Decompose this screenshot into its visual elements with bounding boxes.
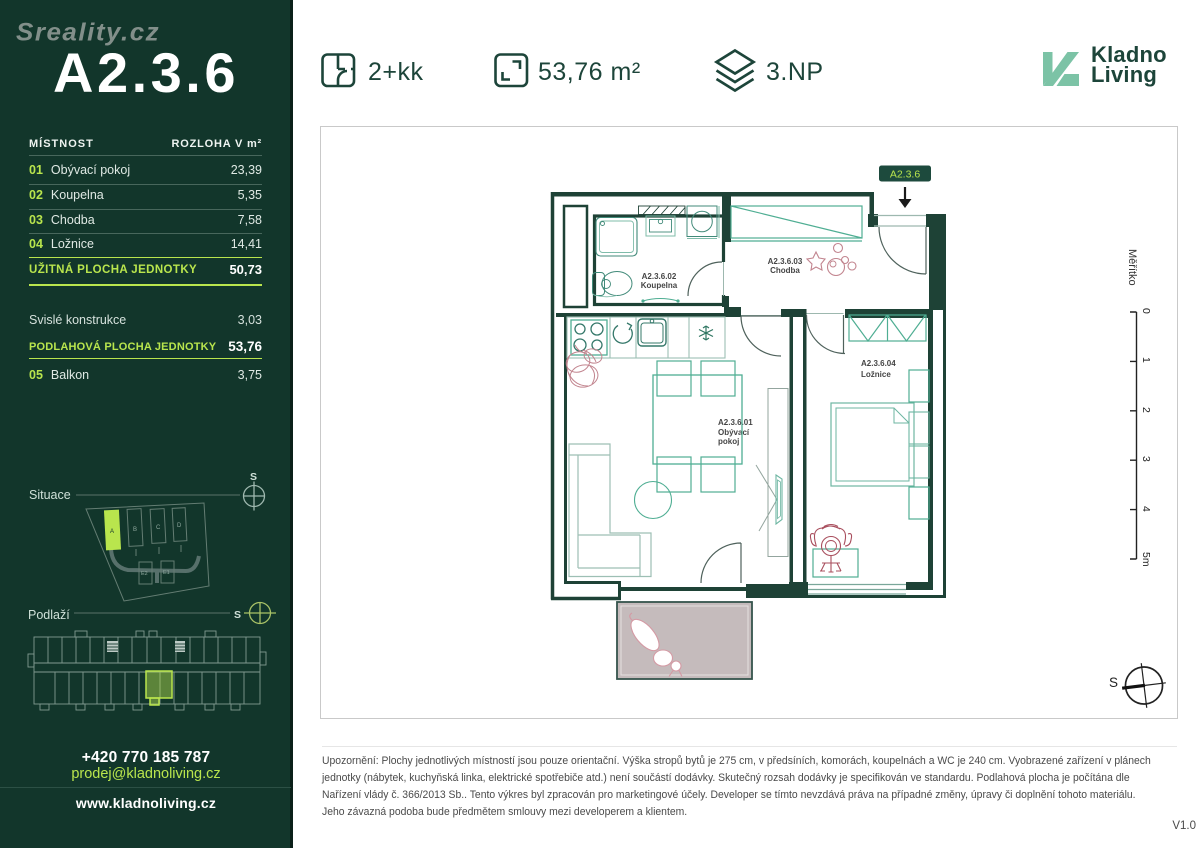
svg-text:D: D bbox=[177, 523, 182, 529]
svg-text:A2.3.6: A2.3.6 bbox=[890, 169, 921, 181]
svg-text:A: A bbox=[110, 529, 114, 535]
svg-text:E1: E1 bbox=[163, 570, 170, 576]
svg-text:S: S bbox=[250, 471, 257, 483]
svg-text:S: S bbox=[234, 609, 241, 621]
svg-text:B: B bbox=[133, 527, 137, 533]
svg-text:C: C bbox=[156, 525, 161, 531]
svg-text:E2: E2 bbox=[141, 571, 148, 577]
